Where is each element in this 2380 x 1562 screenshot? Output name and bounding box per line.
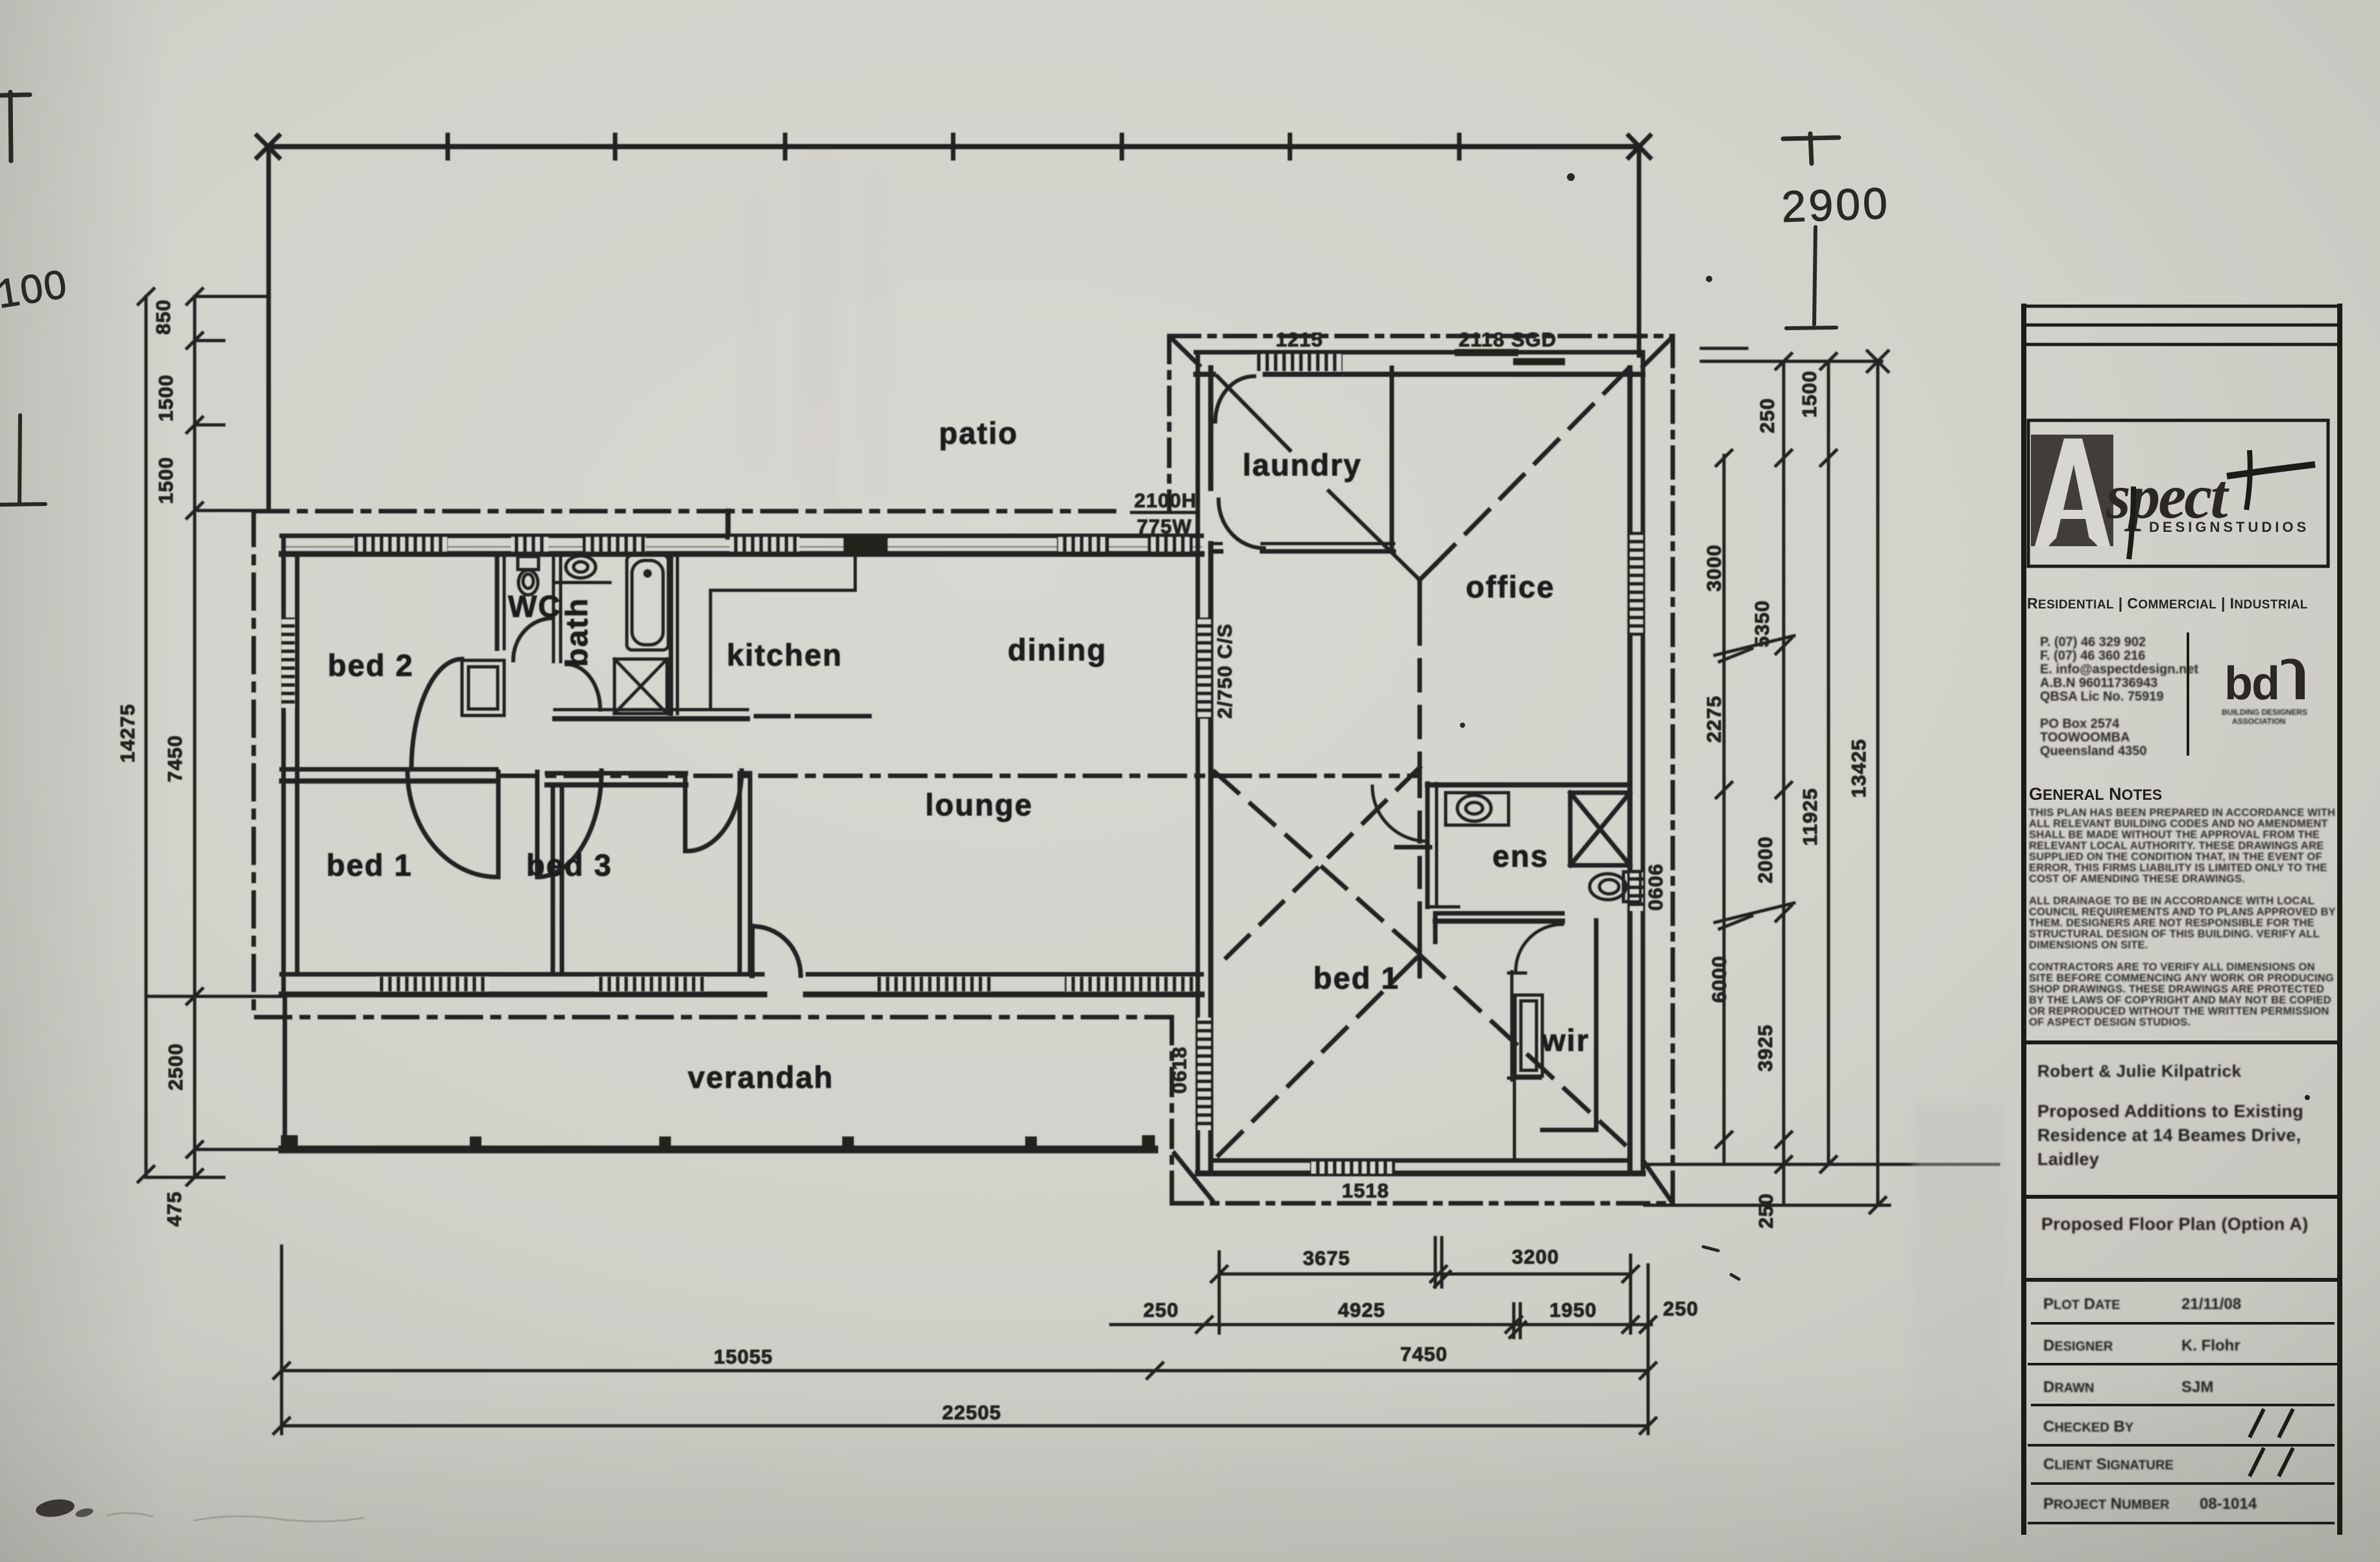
- svg-text:laundry: laundry: [1243, 448, 1362, 482]
- svg-text:475: 475: [163, 1191, 186, 1227]
- svg-text:1518: 1518: [1342, 1179, 1389, 1202]
- svg-text:775W: 775W: [1137, 515, 1192, 538]
- svg-text:SITE BEFORE COMMENCING ANY WOR: SITE BEFORE COMMENCING ANY WORK OR PRODU…: [2029, 972, 2334, 984]
- svg-text:STRUCTURAL DESIGN OF THIS BUIL: STRUCTURAL DESIGN OF THIS BUILDING. VERI…: [2029, 928, 2320, 940]
- svg-text:ALL RELEVANT BUILDING CODES AN: ALL RELEVANT BUILDING CODES AND NO AMEND…: [2029, 818, 2328, 830]
- svg-text:verandah: verandah: [688, 1060, 834, 1094]
- svg-text:DESIGNER: DESIGNER: [2043, 1337, 2113, 1354]
- svg-text:PROJECT NUMBER: PROJECT NUMBER: [2043, 1495, 2170, 1513]
- svg-text:1950: 1950: [1549, 1299, 1597, 1321]
- svg-text:kitchen: kitchen: [727, 638, 843, 672]
- svg-text:2900: 2900: [1780, 178, 1891, 232]
- svg-text:DESIGNSTUDIOS: DESIGNSTUDIOS: [2149, 519, 2309, 535]
- svg-text:250: 250: [1143, 1299, 1179, 1321]
- svg-text:E. info@aspectdesign.net: E. info@aspectdesign.net: [2040, 662, 2198, 677]
- svg-text:F. (07) 46 360 216: F. (07) 46 360 216: [2040, 649, 2145, 663]
- svg-text:WC: WC: [508, 589, 561, 623]
- svg-text:bed 1: bed 1: [1313, 961, 1400, 995]
- svg-text:0606: 0606: [1644, 863, 1667, 911]
- svg-text:Proposed Additions to Existing: Proposed Additions to Existing: [2037, 1101, 2303, 1121]
- svg-text:PLOT DATE: PLOT DATE: [2043, 1295, 2120, 1313]
- svg-text:bed 3: bed 3: [526, 848, 613, 882]
- svg-text:3925: 3925: [1754, 1024, 1777, 1072]
- svg-text:GENERAL NOTES: GENERAL NOTES: [2029, 784, 2162, 804]
- svg-text:2/750 C/S: 2/750 C/S: [1213, 623, 1236, 719]
- svg-text:250: 250: [1756, 398, 1779, 433]
- svg-text:15055: 15055: [714, 1345, 773, 1368]
- svg-text:THEM. DESIGNERS ARE NOT RESPON: THEM. DESIGNERS ARE NOT RESPONSIBLE FOR …: [2029, 917, 2314, 929]
- svg-text:250: 250: [1755, 1193, 1777, 1229]
- svg-text:2100H: 2100H: [1134, 489, 1196, 512]
- svg-text:SHOP DRAWINGS. THESE DRAWINGS: SHOP DRAWINGS. THESE DRAWINGS ARE PROTEC…: [2029, 983, 2324, 995]
- svg-text:Queensland 4350: Queensland 4350: [2040, 744, 2147, 758]
- svg-text:THIS PLAN HAS BEEN PREPARED IN: THIS PLAN HAS BEEN PREPARED IN ACCORDANC…: [2029, 807, 2335, 819]
- svg-text:SUPPLIED ON THE CONDITION THAT: SUPPLIED ON THE CONDITION THAT, IN THE E…: [2029, 851, 2322, 863]
- svg-text:COUNCIL REQUIREMENTS AND TO PL: COUNCIL REQUIREMENTS AND TO PLANS APPROV…: [2029, 906, 2336, 918]
- svg-text:CLIENT SIGNATURE: CLIENT SIGNATURE: [2043, 1456, 2174, 1473]
- svg-text:lounge: lounge: [925, 787, 1033, 822]
- svg-text:11925: 11925: [1799, 788, 1821, 847]
- svg-text:bd: bd: [2224, 658, 2279, 710]
- svg-text:office: office: [1466, 570, 1555, 604]
- svg-text:ASSOCIATION: ASSOCIATION: [2232, 717, 2285, 726]
- svg-text:08-1014: 08-1014: [2200, 1495, 2257, 1513]
- svg-text:Robert & Julie Kilpatrick: Robert & Julie Kilpatrick: [2037, 1061, 2241, 1081]
- svg-text:2500: 2500: [164, 1043, 187, 1090]
- svg-text:DIMENSIONS ON SITE.: DIMENSIONS ON SITE.: [2029, 939, 2148, 951]
- svg-text:6000: 6000: [1708, 955, 1730, 1003]
- svg-text:patio: patio: [939, 416, 1018, 450]
- svg-text:250: 250: [1663, 1297, 1699, 1320]
- svg-text:CHECKED BY: CHECKED BY: [2043, 1418, 2134, 1436]
- svg-text:OF ASPECT DESIGN STUDIOS.: OF ASPECT DESIGN STUDIOS.: [2029, 1016, 2191, 1028]
- svg-text:bed 1: bed 1: [326, 848, 413, 882]
- svg-text:K. Flohr: K. Flohr: [2181, 1337, 2240, 1354]
- svg-text:2000: 2000: [1754, 836, 1777, 883]
- svg-text:1500: 1500: [154, 374, 177, 422]
- svg-text:ALL DRAINAGE TO BE IN ACCORDAN: ALL DRAINAGE TO BE IN ACCORDANCE WITH LO…: [2029, 895, 2314, 907]
- svg-text:bath: bath: [559, 597, 594, 667]
- svg-text:dining: dining: [1008, 632, 1107, 667]
- svg-text:DRAWN: DRAWN: [2043, 1378, 2094, 1396]
- svg-text:ERROR, THIS FIRMS LIABILITY IS: ERROR, THIS FIRMS LIABILITY IS LIMITED O…: [2029, 862, 2327, 874]
- svg-text:7450: 7450: [164, 735, 186, 782]
- svg-text:Residence at 14 Beames Drive,: Residence at 14 Beames Drive,: [2037, 1125, 2301, 1145]
- svg-text:A.B.N 96011736943: A.B.N 96011736943: [2040, 676, 2157, 690]
- svg-text:1215: 1215: [1276, 328, 1323, 351]
- svg-text:3675: 3675: [1303, 1247, 1350, 1269]
- svg-text:SJM: SJM: [2181, 1378, 2213, 1396]
- svg-text:QBSA Lic No. 75919: QBSA Lic No. 75919: [2040, 690, 2163, 704]
- svg-text:14275: 14275: [116, 704, 139, 763]
- svg-text:2275: 2275: [1703, 695, 1725, 743]
- svg-text:COST OF AMENDING THESE DRAWING: COST OF AMENDING THESE DRAWINGS.: [2029, 873, 2245, 885]
- svg-text:4925: 4925: [1338, 1299, 1385, 1321]
- svg-text:ens: ens: [1492, 839, 1549, 873]
- svg-text:22505: 22505: [942, 1401, 1001, 1424]
- svg-text:RELEVANT LOCAL AUTHORITY. THES: RELEVANT LOCAL AUTHORITY. THESE DRAWINGS…: [2029, 840, 2324, 852]
- svg-text:bed 2: bed 2: [328, 648, 414, 682]
- svg-text:OR REPRODUCED WITHOUT THE WRIT: OR REPRODUCED WITHOUT THE WRITTEN PERMIS…: [2029, 1005, 2329, 1017]
- svg-text:Laidley: Laidley: [2037, 1149, 2099, 1169]
- svg-text:7450: 7450: [1400, 1343, 1448, 1365]
- svg-text:3000: 3000: [1703, 544, 1725, 592]
- svg-text:BY THE LAWS OF COPYRIGHT AND M: BY THE LAWS OF COPYRIGHT AND MAY NOT BE …: [2029, 994, 2331, 1006]
- svg-text:P. (07) 46 329 902: P. (07) 46 329 902: [2040, 635, 2146, 649]
- svg-text:PO Box 2574: PO Box 2574: [2040, 717, 2120, 731]
- svg-text:3200: 3200: [1512, 1245, 1559, 1268]
- svg-text:BUILDING DESIGNERS: BUILDING DESIGNERS: [2222, 708, 2307, 717]
- svg-text:5350: 5350: [1751, 600, 1773, 647]
- svg-text:CONTRACTORS ARE TO VERIFY ALL: CONTRACTORS ARE TO VERIFY ALL DIMENSIONS…: [2029, 961, 2315, 973]
- svg-text:1500: 1500: [1798, 370, 1821, 418]
- svg-text:TOOWOOMBA: TOOWOOMBA: [2040, 730, 2130, 745]
- svg-text:Proposed Floor Plan (Option A): Proposed Floor Plan (Option A): [2041, 1214, 2308, 1234]
- svg-text:SHALL BE MADE WITHOUT THE APP: SHALL BE MADE WITHOUT THE APPROVAL FROM …: [2029, 829, 2320, 841]
- svg-text:13425: 13425: [1847, 739, 1870, 798]
- svg-text:2118 SGD: 2118 SGD: [1459, 328, 1557, 351]
- svg-text:wir: wir: [1541, 1023, 1590, 1057]
- svg-text:850: 850: [152, 299, 175, 335]
- svg-text:21/11/08: 21/11/08: [2181, 1295, 2241, 1313]
- svg-text:1500: 1500: [154, 457, 177, 504]
- svg-text:0618: 0618: [1168, 1046, 1191, 1094]
